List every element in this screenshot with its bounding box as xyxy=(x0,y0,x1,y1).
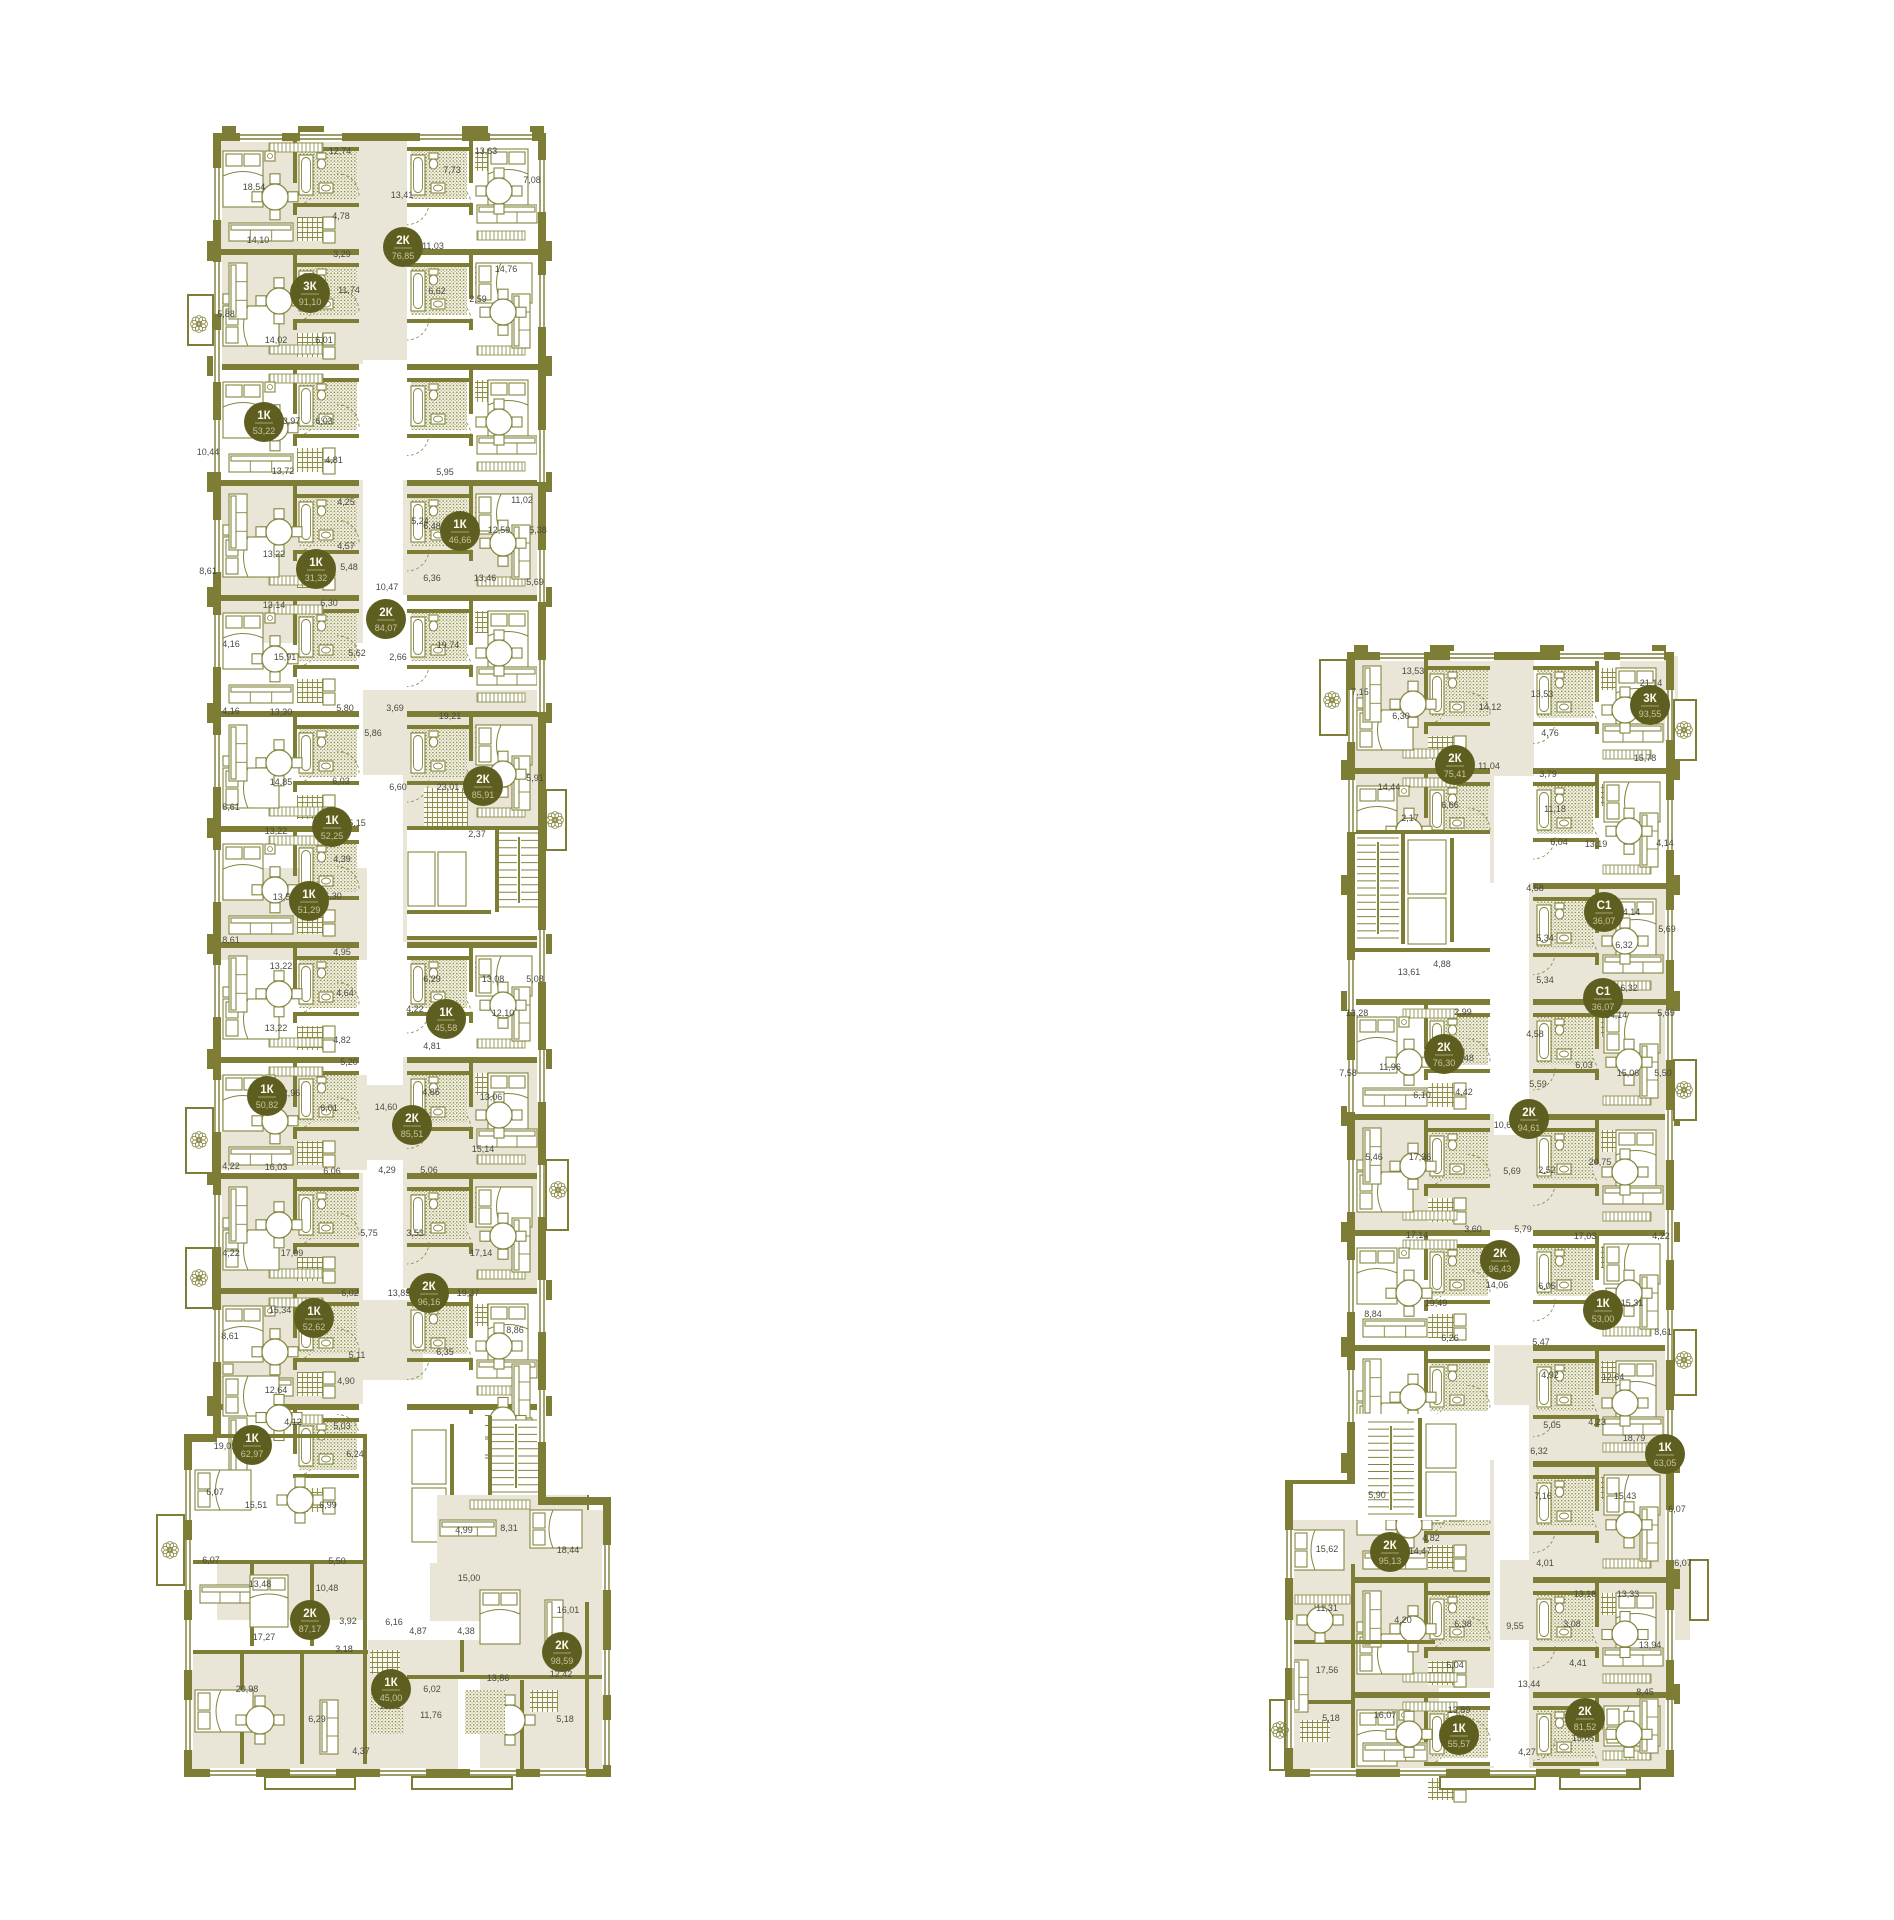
svg-text:2,66: 2,66 xyxy=(389,652,407,662)
svg-text:6,07: 6,07 xyxy=(202,1555,220,1565)
svg-text:13,85: 13,85 xyxy=(388,1288,411,1298)
svg-text:13,22: 13,22 xyxy=(270,961,293,971)
svg-text:17,36: 17,36 xyxy=(1409,1152,1432,1162)
svg-text:5,34: 5,34 xyxy=(1536,975,1554,985)
svg-text:5,91: 5,91 xyxy=(526,773,544,783)
svg-text:14,85: 14,85 xyxy=(270,777,293,787)
svg-text:13,14: 13,14 xyxy=(263,600,286,610)
svg-text:4,85: 4,85 xyxy=(422,1087,440,1097)
svg-text:6,36: 6,36 xyxy=(423,573,441,583)
svg-text:6,60: 6,60 xyxy=(389,782,407,792)
svg-text:13,46: 13,46 xyxy=(474,573,497,583)
svg-text:15,91: 15,91 xyxy=(274,652,297,662)
svg-text:14,60: 14,60 xyxy=(375,1102,398,1112)
svg-text:52,62: 52,62 xyxy=(303,1322,326,1332)
svg-text:5,20: 5,20 xyxy=(340,1057,358,1067)
svg-text:6,07: 6,07 xyxy=(1674,1558,1692,1568)
svg-text:2К: 2К xyxy=(422,1281,436,1293)
svg-text:6,16: 6,16 xyxy=(385,1617,403,1627)
svg-text:6,04: 6,04 xyxy=(1550,837,1568,847)
svg-text:12,64: 12,64 xyxy=(1602,1372,1625,1382)
svg-text:5,88: 5,88 xyxy=(217,309,235,319)
svg-text:4,23: 4,23 xyxy=(1588,1417,1606,1427)
svg-text:6,30: 6,30 xyxy=(320,598,338,608)
svg-text:6,07: 6,07 xyxy=(1668,1504,1686,1514)
svg-text:1К: 1К xyxy=(1452,1723,1466,1735)
svg-text:12,10: 12,10 xyxy=(492,1008,515,1018)
svg-text:5,50: 5,50 xyxy=(328,1556,346,1566)
svg-text:3,08: 3,08 xyxy=(1563,1619,1581,1629)
svg-text:55,57: 55,57 xyxy=(1448,1739,1471,1749)
svg-text:4,82: 4,82 xyxy=(333,1035,351,1045)
svg-text:19,74: 19,74 xyxy=(437,640,460,650)
svg-text:4,81: 4,81 xyxy=(325,455,343,465)
svg-text:8,86: 8,86 xyxy=(506,1325,524,1335)
svg-text:12,74: 12,74 xyxy=(329,146,352,156)
svg-text:19,49: 19,49 xyxy=(1425,1298,1448,1308)
svg-text:85,91: 85,91 xyxy=(472,790,495,800)
svg-text:4,22: 4,22 xyxy=(1652,1231,1670,1241)
svg-text:50,82: 50,82 xyxy=(256,1100,279,1110)
svg-text:11,31: 11,31 xyxy=(1316,1603,1338,1613)
svg-text:13,94: 13,94 xyxy=(1639,1640,1662,1650)
svg-text:7,73: 7,73 xyxy=(443,165,461,175)
svg-text:С1: С1 xyxy=(1596,986,1611,998)
svg-text:4,90: 4,90 xyxy=(337,1376,355,1386)
svg-text:52,25: 52,25 xyxy=(321,831,344,841)
svg-text:1К: 1К xyxy=(384,1677,398,1689)
svg-text:1К: 1К xyxy=(257,410,271,422)
svg-text:12,64: 12,64 xyxy=(265,1385,288,1395)
svg-text:2К: 2К xyxy=(476,774,490,786)
svg-text:6,01: 6,01 xyxy=(320,1103,338,1113)
svg-text:3К: 3К xyxy=(1643,693,1657,705)
svg-text:5,95: 5,95 xyxy=(436,467,454,477)
svg-text:С1: С1 xyxy=(1597,900,1612,912)
svg-text:16,03: 16,03 xyxy=(265,1162,288,1172)
svg-text:14,47: 14,47 xyxy=(1409,1546,1432,1556)
svg-text:8,31: 8,31 xyxy=(500,1523,518,1533)
svg-text:4,76: 4,76 xyxy=(1541,728,1559,738)
svg-text:14,10: 14,10 xyxy=(247,235,270,245)
svg-text:13,22: 13,22 xyxy=(263,549,286,559)
svg-text:6,04: 6,04 xyxy=(1446,1660,1464,1670)
svg-text:5,69: 5,69 xyxy=(1658,924,1676,934)
svg-text:14,44: 14,44 xyxy=(1378,782,1401,792)
svg-text:87,17: 87,17 xyxy=(299,1624,322,1634)
svg-text:1К: 1К xyxy=(309,557,323,569)
svg-text:4,99: 4,99 xyxy=(455,1525,473,1535)
svg-text:4,22: 4,22 xyxy=(406,1004,424,1014)
svg-text:13,28: 13,28 xyxy=(1346,1008,1369,1018)
svg-text:18,79: 18,79 xyxy=(1623,1433,1646,1443)
svg-text:4,64: 4,64 xyxy=(336,988,354,998)
svg-text:63,05: 63,05 xyxy=(1654,1458,1677,1468)
svg-text:11,02: 11,02 xyxy=(511,495,533,505)
svg-text:4,16: 4,16 xyxy=(222,706,240,716)
svg-text:6,66: 6,66 xyxy=(1441,800,1459,810)
svg-text:6,07: 6,07 xyxy=(206,1487,224,1497)
svg-text:23,01: 23,01 xyxy=(437,782,460,792)
svg-text:1К: 1К xyxy=(307,1306,321,1318)
svg-text:6,32: 6,32 xyxy=(1530,1446,1548,1456)
svg-text:5,05: 5,05 xyxy=(1543,1420,1561,1430)
svg-text:5,46: 5,46 xyxy=(1365,1152,1383,1162)
svg-text:8,61: 8,61 xyxy=(222,935,240,945)
svg-text:3,69: 3,69 xyxy=(386,703,404,713)
svg-text:75,41: 75,41 xyxy=(1444,769,1467,779)
svg-text:4,95: 4,95 xyxy=(333,947,351,957)
svg-text:10,44: 10,44 xyxy=(197,447,220,457)
svg-text:6,48: 6,48 xyxy=(423,521,441,531)
svg-text:3,18: 3,18 xyxy=(335,1644,353,1654)
svg-text:7,16: 7,16 xyxy=(1534,1491,1552,1501)
svg-text:15,00: 15,00 xyxy=(458,1573,481,1583)
svg-text:2,52: 2,52 xyxy=(1538,1165,1556,1175)
svg-text:8,61: 8,61 xyxy=(1654,1327,1672,1337)
svg-text:8,61: 8,61 xyxy=(199,566,217,576)
svg-text:81,52: 81,52 xyxy=(1574,1722,1597,1732)
svg-text:11,76: 11,76 xyxy=(420,1710,442,1720)
svg-text:1К: 1К xyxy=(1596,1298,1610,1310)
svg-text:13,30: 13,30 xyxy=(270,707,293,717)
svg-text:11,04: 11,04 xyxy=(1478,761,1500,771)
svg-text:17,56: 17,56 xyxy=(1316,1665,1339,1675)
svg-text:6,10: 6,10 xyxy=(1413,1090,1431,1100)
svg-text:15,14: 15,14 xyxy=(472,1144,495,1154)
svg-text:13,06: 13,06 xyxy=(480,1092,503,1102)
svg-text:6,05: 6,05 xyxy=(1538,1281,1556,1291)
svg-text:2К: 2К xyxy=(1437,1042,1451,1054)
svg-text:8,45: 8,45 xyxy=(1636,1687,1654,1697)
svg-text:11,03: 11,03 xyxy=(422,241,444,251)
svg-text:4,22: 4,22 xyxy=(222,1248,240,1258)
svg-text:8,84: 8,84 xyxy=(1364,1309,1382,1319)
svg-text:4,81: 4,81 xyxy=(423,1041,441,1051)
svg-text:45,58: 45,58 xyxy=(435,1023,458,1033)
svg-text:7,15: 7,15 xyxy=(1351,687,1369,697)
svg-text:6,02: 6,02 xyxy=(341,1288,359,1298)
svg-text:6,29: 6,29 xyxy=(308,1714,326,1724)
svg-text:1К: 1К xyxy=(260,1084,274,1096)
svg-text:19,37: 19,37 xyxy=(457,1288,480,1298)
svg-text:4,22: 4,22 xyxy=(222,1161,240,1171)
svg-text:4,82: 4,82 xyxy=(1422,1533,1440,1543)
svg-text:6,30: 6,30 xyxy=(1392,711,1410,721)
svg-text:17,03: 17,03 xyxy=(1574,1231,1597,1241)
svg-text:4,42: 4,42 xyxy=(1455,1087,1473,1097)
svg-text:5,11: 5,11 xyxy=(349,1350,366,1360)
svg-text:3,60: 3,60 xyxy=(1464,1224,1482,1234)
svg-text:95,13: 95,13 xyxy=(1379,1556,1402,1566)
svg-text:6,32: 6,32 xyxy=(1615,940,1633,950)
svg-text:4,58: 4,58 xyxy=(1526,1029,1544,1039)
svg-text:4,57: 4,57 xyxy=(337,541,355,551)
svg-text:5,06: 5,06 xyxy=(420,1165,438,1175)
svg-text:1К: 1К xyxy=(325,815,339,827)
svg-text:4,88: 4,88 xyxy=(1433,959,1451,969)
svg-text:4,87: 4,87 xyxy=(409,1626,427,1636)
svg-text:11,18: 11,18 xyxy=(1544,804,1566,814)
svg-text:5,90: 5,90 xyxy=(1368,1490,1386,1500)
svg-text:6,29: 6,29 xyxy=(423,974,441,984)
svg-text:5,34: 5,34 xyxy=(1536,933,1554,943)
svg-text:13,86: 13,86 xyxy=(487,1673,510,1683)
svg-text:3,29: 3,29 xyxy=(333,249,351,259)
svg-text:14,02: 14,02 xyxy=(265,335,288,345)
svg-text:13,19: 13,19 xyxy=(1585,839,1608,849)
svg-text:17,27: 17,27 xyxy=(253,1632,276,1642)
svg-text:5,59: 5,59 xyxy=(1529,1079,1547,1089)
svg-text:6,02: 6,02 xyxy=(423,1684,441,1694)
svg-text:76,85: 76,85 xyxy=(392,251,415,261)
svg-text:46,66: 46,66 xyxy=(449,535,472,545)
svg-text:13,22: 13,22 xyxy=(265,826,288,836)
svg-text:16,07: 16,07 xyxy=(1374,1710,1397,1720)
svg-text:45,00: 45,00 xyxy=(380,1693,403,1703)
svg-text:6,62: 6,62 xyxy=(428,286,446,296)
svg-text:3,92: 3,92 xyxy=(339,1616,357,1626)
svg-text:7,58: 7,58 xyxy=(1339,1068,1357,1078)
svg-text:13,63: 13,63 xyxy=(475,146,498,156)
svg-text:53,22: 53,22 xyxy=(253,426,276,436)
svg-text:6,35: 6,35 xyxy=(436,1347,454,1357)
svg-text:2К: 2К xyxy=(1578,1706,1592,1718)
svg-text:5,18: 5,18 xyxy=(556,1714,574,1724)
svg-text:5,50: 5,50 xyxy=(1654,1068,1672,1078)
svg-text:13,08: 13,08 xyxy=(482,974,505,984)
svg-text:91,10: 91,10 xyxy=(299,297,322,307)
svg-text:13,33: 13,33 xyxy=(1617,1589,1640,1599)
svg-text:13,41: 13,41 xyxy=(391,190,414,200)
svg-text:2К: 2К xyxy=(1493,1248,1507,1260)
svg-text:2К: 2К xyxy=(555,1640,569,1652)
svg-text:8,61: 8,61 xyxy=(221,1331,239,1341)
svg-text:31,32: 31,32 xyxy=(305,573,328,583)
svg-text:2К: 2К xyxy=(303,1608,317,1620)
svg-text:4,37: 4,37 xyxy=(352,1746,370,1756)
svg-text:2,17: 2,17 xyxy=(1401,813,1419,823)
svg-text:1К: 1К xyxy=(302,889,316,901)
svg-text:6,03: 6,03 xyxy=(315,416,333,426)
svg-text:20,75: 20,75 xyxy=(1589,1157,1612,1167)
svg-text:5,03: 5,03 xyxy=(333,1421,351,1431)
svg-text:5,69: 5,69 xyxy=(1657,1008,1675,1018)
svg-text:2К: 2К xyxy=(396,235,410,247)
svg-text:5,86: 5,86 xyxy=(364,728,382,738)
svg-text:13,72: 13,72 xyxy=(272,466,295,476)
svg-text:5,62: 5,62 xyxy=(348,648,366,658)
svg-text:15,31: 15,31 xyxy=(1621,1298,1644,1308)
svg-text:13,18: 13,18 xyxy=(1574,1589,1597,1599)
svg-text:2,99: 2,99 xyxy=(1454,1007,1472,1017)
svg-text:17,09: 17,09 xyxy=(281,1248,304,1258)
svg-text:85,51: 85,51 xyxy=(401,1129,424,1139)
svg-text:13,22: 13,22 xyxy=(265,1023,288,1033)
svg-text:5,69: 5,69 xyxy=(1503,1166,1521,1176)
svg-text:2К: 2К xyxy=(379,607,393,619)
svg-text:53,00: 53,00 xyxy=(1592,1314,1615,1324)
svg-text:13,48: 13,48 xyxy=(249,1579,272,1589)
svg-text:4,39: 4,39 xyxy=(333,854,351,864)
svg-text:15,43: 15,43 xyxy=(1614,1491,1637,1501)
svg-text:15,34: 15,34 xyxy=(269,1305,292,1315)
svg-text:84,07: 84,07 xyxy=(375,623,398,633)
svg-text:93,55: 93,55 xyxy=(1639,709,1662,719)
svg-text:4,78: 4,78 xyxy=(332,211,350,221)
svg-text:5,08: 5,08 xyxy=(526,974,544,984)
svg-text:96,16: 96,16 xyxy=(418,1297,441,1307)
svg-text:5,69: 5,69 xyxy=(526,577,544,587)
svg-text:1К: 1К xyxy=(439,1007,453,1019)
svg-text:2,37: 2,37 xyxy=(468,829,486,839)
svg-text:5,80: 5,80 xyxy=(336,703,354,713)
svg-text:6,03: 6,03 xyxy=(332,776,350,786)
svg-text:5,47: 5,47 xyxy=(1532,1337,1550,1347)
svg-text:3К: 3К xyxy=(303,281,317,293)
svg-text:6,32: 6,32 xyxy=(1620,983,1638,993)
svg-text:16,01: 16,01 xyxy=(557,1605,580,1615)
svg-text:13,44: 13,44 xyxy=(1518,1679,1541,1689)
svg-text:15,51: 15,51 xyxy=(245,1500,268,1510)
svg-text:6,06: 6,06 xyxy=(323,1166,341,1176)
svg-text:14,76: 14,76 xyxy=(495,264,518,274)
svg-text:20,98: 20,98 xyxy=(236,1684,259,1694)
svg-text:4,16: 4,16 xyxy=(222,639,240,649)
svg-text:10,47: 10,47 xyxy=(376,582,399,592)
svg-text:4,27: 4,27 xyxy=(1518,1747,1536,1757)
svg-text:2К: 2К xyxy=(405,1113,419,1125)
svg-text:13,89: 13,89 xyxy=(1448,1705,1471,1715)
svg-text:14,12: 14,12 xyxy=(1479,702,1502,712)
svg-text:7,08: 7,08 xyxy=(523,175,541,185)
svg-text:4,29: 4,29 xyxy=(378,1165,396,1175)
svg-text:4,14: 4,14 xyxy=(1656,838,1674,848)
svg-text:4,41: 4,41 xyxy=(1569,1658,1587,1668)
svg-text:2К: 2К xyxy=(1383,1540,1397,1552)
svg-text:13,61: 13,61 xyxy=(1398,967,1421,977)
svg-text:6,26: 6,26 xyxy=(1441,1333,1459,1343)
svg-text:19,21: 19,21 xyxy=(439,711,462,721)
svg-text:6,38: 6,38 xyxy=(1454,1619,1472,1629)
svg-text:6,01: 6,01 xyxy=(315,335,333,345)
svg-text:4,92: 4,92 xyxy=(1541,1370,1559,1380)
svg-text:5,48: 5,48 xyxy=(340,562,358,572)
svg-text:5,79: 5,79 xyxy=(1514,1224,1532,1234)
svg-text:6,24: 6,24 xyxy=(346,1449,364,1459)
svg-text:2,59: 2,59 xyxy=(469,294,487,304)
svg-text:13,53: 13,53 xyxy=(1402,666,1425,676)
svg-text:15,06: 15,06 xyxy=(1617,1068,1640,1078)
svg-text:98,59: 98,59 xyxy=(551,1656,574,1666)
svg-text:1К: 1К xyxy=(453,519,467,531)
svg-text:51,29: 51,29 xyxy=(298,905,321,915)
svg-text:5,18: 5,18 xyxy=(1322,1713,1340,1723)
svg-text:62,97: 62,97 xyxy=(241,1449,264,1459)
svg-text:96,43: 96,43 xyxy=(1489,1264,1512,1274)
svg-text:17,14: 17,14 xyxy=(470,1248,493,1258)
svg-text:8,61: 8,61 xyxy=(222,802,240,812)
svg-text:10,48: 10,48 xyxy=(316,1583,339,1593)
svg-text:3,79: 3,79 xyxy=(1539,769,1557,779)
svg-text:1К: 1К xyxy=(1658,1442,1672,1454)
svg-text:2К: 2К xyxy=(1448,753,1462,765)
svg-text:6,03: 6,03 xyxy=(1575,1060,1593,1070)
svg-text:12,59: 12,59 xyxy=(488,525,511,535)
svg-text:1К: 1К xyxy=(245,1433,259,1445)
svg-text:6,99: 6,99 xyxy=(319,1500,337,1510)
svg-text:36,07: 36,07 xyxy=(1593,916,1616,926)
svg-text:18,44: 18,44 xyxy=(557,1545,580,1555)
svg-text:11,74: 11,74 xyxy=(338,285,360,295)
svg-text:17,14: 17,14 xyxy=(1406,1230,1429,1240)
svg-text:2К: 2К xyxy=(1522,1107,1536,1119)
svg-text:14,06: 14,06 xyxy=(1486,1280,1509,1290)
svg-text:13,53: 13,53 xyxy=(1531,689,1554,699)
svg-text:5,38: 5,38 xyxy=(529,525,547,535)
svg-text:4,20: 4,20 xyxy=(1394,1615,1412,1625)
svg-text:76,30: 76,30 xyxy=(1433,1058,1456,1068)
svg-text:36,07: 36,07 xyxy=(1592,1002,1615,1012)
svg-text:94,61: 94,61 xyxy=(1518,1123,1541,1133)
svg-text:11,96: 11,96 xyxy=(1379,1062,1401,1072)
svg-text:4,25: 4,25 xyxy=(337,497,355,507)
svg-text:15,78: 15,78 xyxy=(1634,753,1657,763)
svg-text:3,53: 3,53 xyxy=(406,1228,424,1238)
svg-text:4,01: 4,01 xyxy=(1536,1558,1554,1568)
svg-text:4,12: 4,12 xyxy=(284,1417,302,1427)
svg-text:4,38: 4,38 xyxy=(457,1626,475,1636)
svg-text:4,58: 4,58 xyxy=(1526,883,1544,893)
svg-text:15,62: 15,62 xyxy=(1316,1544,1339,1554)
svg-text:9,55: 9,55 xyxy=(1506,1621,1524,1631)
svg-text:5,75: 5,75 xyxy=(360,1228,378,1238)
svg-text:18,54: 18,54 xyxy=(243,182,266,192)
